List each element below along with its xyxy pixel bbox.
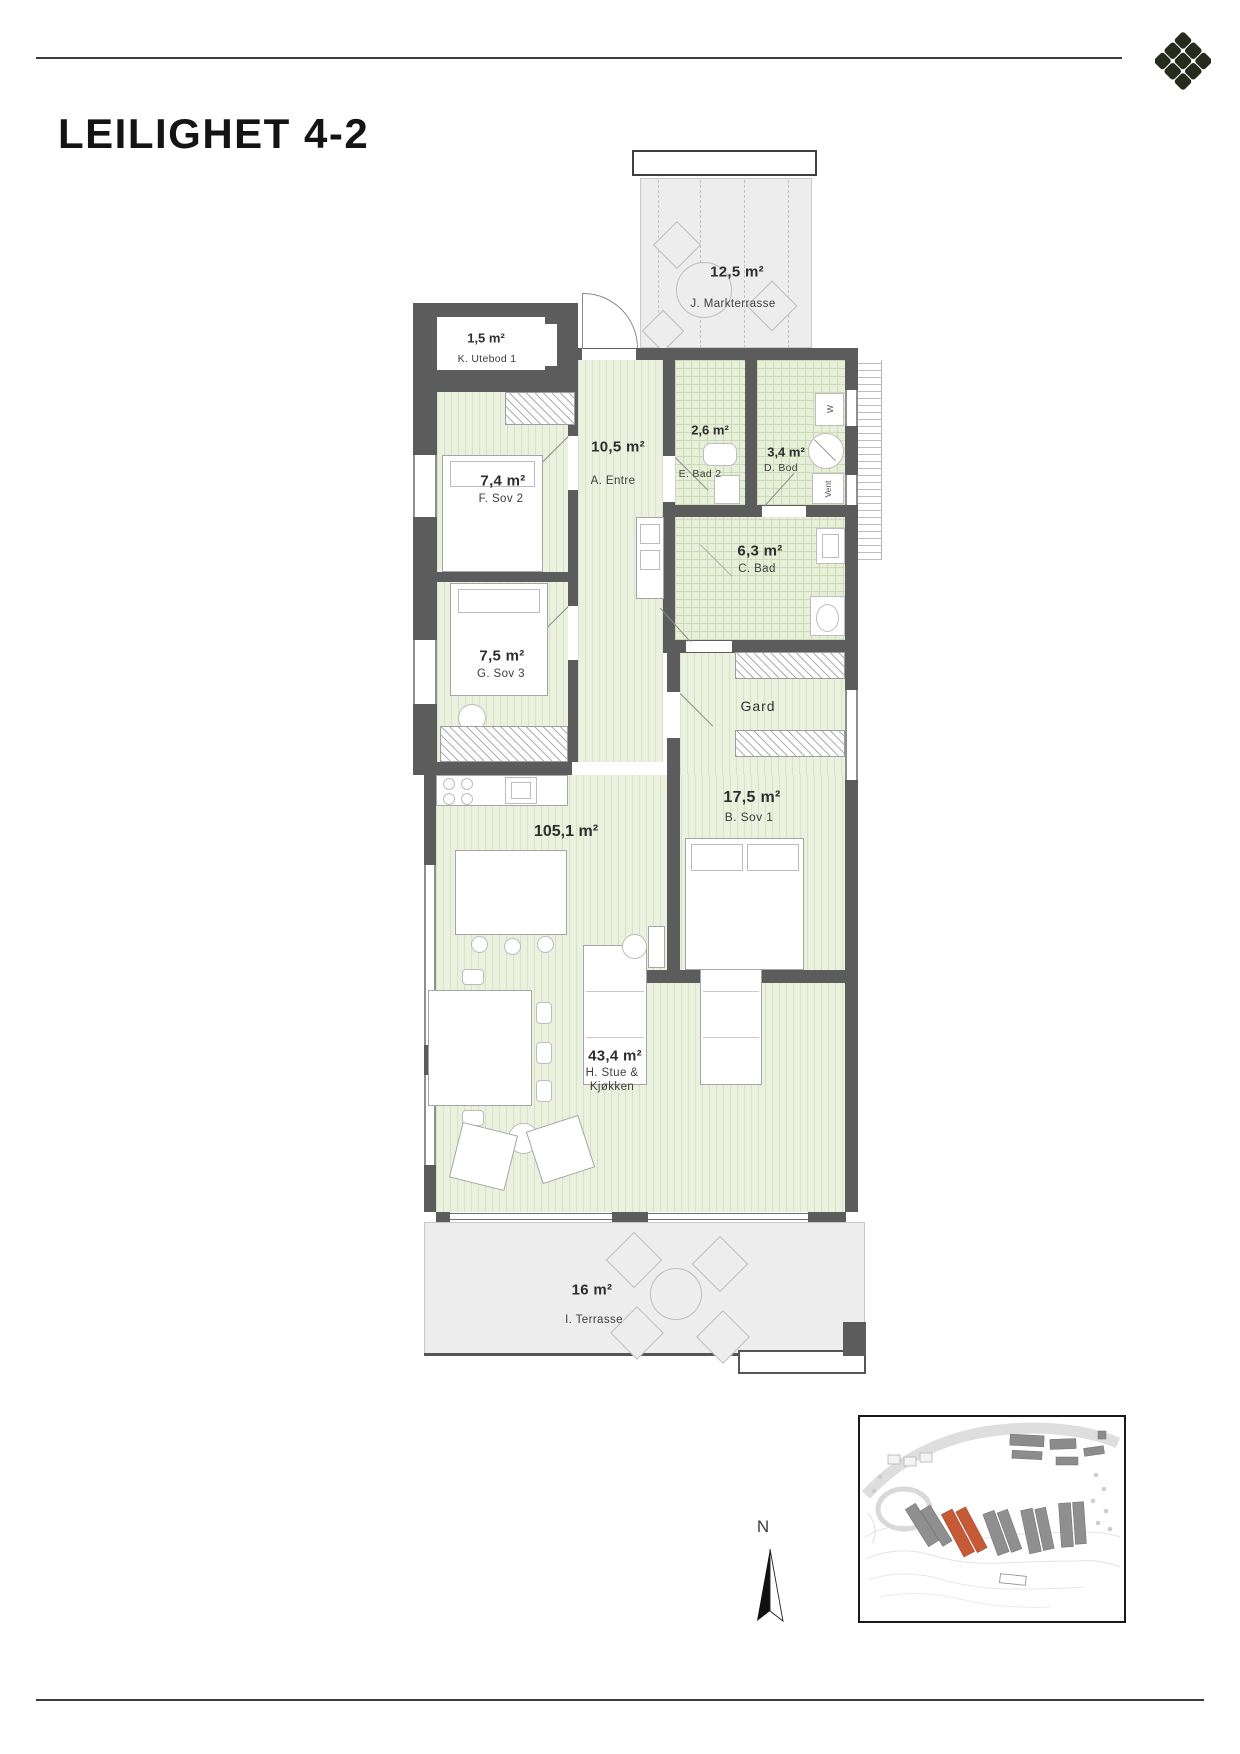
pillow [691, 844, 743, 871]
dining-table [428, 990, 532, 1106]
cooktop-burner [443, 778, 455, 790]
room-label-sov2-area: 7,4 m² [480, 473, 525, 490]
exterior-stair-hatch [858, 360, 882, 560]
desk-chair [622, 934, 647, 959]
wall-segment [745, 360, 757, 505]
brochure-page: LEILIGHET 4-2 [0, 0, 1240, 1754]
room-label-stue-name2: Kjøkken [590, 1081, 634, 1093]
wall-segment [436, 1212, 450, 1222]
wardrobe [440, 726, 568, 762]
wall-segment [663, 517, 675, 653]
window [845, 690, 858, 780]
page-title: LEILIGHET 4-2 [58, 110, 369, 158]
wall-segment [612, 1212, 648, 1222]
room-label-stue-area: 43,4 m² [588, 1048, 642, 1065]
dining-chair [462, 969, 484, 985]
window [413, 640, 437, 704]
bar-stool [471, 936, 488, 953]
wardrobe [735, 730, 845, 757]
wall-segment [413, 370, 578, 392]
kitchen-island [455, 850, 567, 935]
oven [640, 524, 660, 544]
vent-label: Vent [823, 480, 833, 497]
room-label-bad2-name: E. Bad 2 [679, 468, 722, 480]
toilet-bowl [816, 604, 839, 632]
bar-stool [537, 936, 554, 953]
pillow [747, 844, 799, 871]
wall-segment [808, 1212, 846, 1222]
door-gap-sov1 [667, 692, 680, 738]
wall-segment [437, 572, 568, 582]
room-label-sov1-name: B. Sov 1 [725, 810, 774, 824]
pillow [458, 589, 540, 613]
door-gap-utebod [545, 324, 557, 366]
room-label-sov2-name: F. Sov 2 [479, 493, 524, 505]
highlighted-building [941, 1507, 987, 1557]
kitchen-counter [436, 775, 568, 806]
door-gap-bad2 [663, 456, 675, 502]
dining-chair [536, 1042, 552, 1064]
room-label-bad2-area: 2,6 m² [691, 423, 729, 438]
window [845, 475, 858, 505]
room-label-bod-area: 3,4 m² [767, 445, 805, 460]
room-label-bod-name: D. Bod [764, 462, 798, 474]
room-label-markterrasse-area: 12,5 m² [710, 264, 764, 281]
room-label-terrasse-area: 16 m² [572, 1282, 613, 1299]
door-gap-sov2 [568, 436, 578, 490]
wardrobe [505, 392, 575, 425]
compass-north-label: N [757, 1517, 769, 1537]
site-map-inset [858, 1415, 1126, 1623]
room-label-terrasse-name: I. Terrasse [565, 1314, 623, 1326]
north-arrow-icon [748, 1545, 792, 1630]
room-label-bad-area: 6,3 m² [737, 543, 782, 560]
window [845, 390, 858, 426]
room-label-entre-name: A. Entre [591, 475, 636, 487]
oven [640, 550, 660, 570]
footer-rule [36, 1699, 1204, 1701]
diamond-rosette-icon [1155, 31, 1211, 91]
door-gap-sov3 [568, 606, 578, 660]
terrace-table [650, 1268, 702, 1320]
entrance-door-arc [583, 293, 638, 348]
window [413, 455, 437, 517]
room-label-utebod-name: K. Utebod 1 [458, 353, 517, 365]
kitchen-sink-basin [511, 782, 531, 799]
entrance-door-gap [582, 349, 636, 360]
dining-chair [536, 1002, 552, 1024]
room-label-bad-name: C. Bad [738, 563, 776, 575]
door-gap-bad [686, 641, 732, 652]
sink-basin [822, 534, 839, 558]
site-map-drawing [860, 1417, 1124, 1621]
wall-segment [663, 505, 858, 517]
room-label-markterrasse-name: J. Markterrasse [690, 298, 775, 310]
pergola-beam [632, 150, 817, 176]
pergola-line [788, 180, 789, 348]
wall-segment [843, 1322, 866, 1356]
room-label-gard: Gard [740, 698, 775, 714]
room-label-sov3-area: 7,5 m² [479, 648, 524, 665]
cooktop-burner [443, 793, 455, 805]
label-total-area: 105,1 m² [534, 823, 598, 841]
bar-stool [504, 938, 521, 955]
cooktop-burner [461, 778, 473, 790]
terrace-edge [424, 1353, 744, 1356]
room-label-sov3-name: G. Sov 3 [477, 668, 525, 680]
cooktop-burner [461, 793, 473, 805]
dining-chair [536, 1080, 552, 1102]
washer-label: W [825, 405, 835, 413]
header-rule [36, 57, 1122, 59]
room-label-entre-area: 10,5 m² [591, 439, 645, 456]
door-gap-bod [762, 506, 806, 517]
room-label-stue-name1: H. Stue & [586, 1067, 639, 1079]
wall-segment [413, 762, 572, 775]
toilet [703, 443, 737, 466]
wall-segment [413, 303, 578, 317]
desk [648, 926, 665, 968]
wardrobe [735, 652, 845, 679]
room-label-utebod-area: 1,5 m² [467, 331, 505, 346]
room-label-sov1-area: 17,5 m² [723, 789, 780, 807]
